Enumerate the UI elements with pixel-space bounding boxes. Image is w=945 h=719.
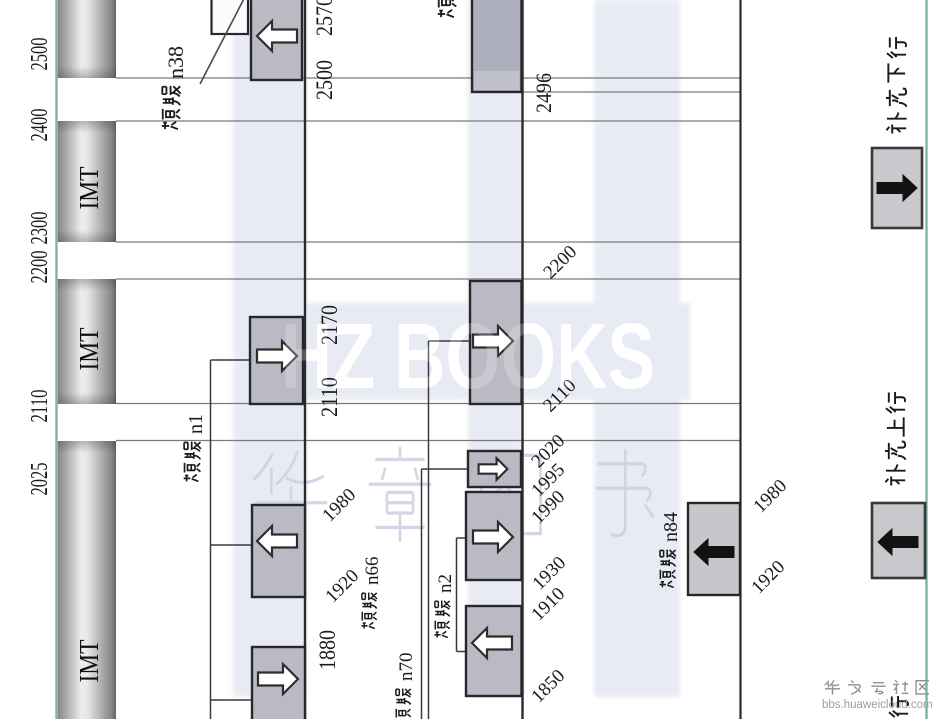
svg-text:1920: 1920 [321,565,363,607]
svg-text:1850: 1850 [527,665,569,707]
svg-text:n66: n66 [362,557,383,586]
svg-text:n70: n70 [396,653,417,682]
svg-text:bbs.huaweicloud.com: bbs.huaweicloud.com [822,699,933,711]
svg-text:2400: 2400 [27,109,53,142]
svg-text:2500: 2500 [312,60,337,100]
svg-text:2200: 2200 [539,241,581,283]
svg-text:2200: 2200 [27,251,53,284]
svg-text:2110: 2110 [27,390,53,423]
svg-text:2570: 2570 [312,0,337,36]
svg-text:BOOKS: BOOKS [394,304,655,408]
svg-text:2500: 2500 [27,38,53,71]
svg-text:1910: 1910 [527,583,569,625]
svg-text:2025: 2025 [27,463,53,496]
svg-text:n2: n2 [435,574,456,593]
svg-text:1880: 1880 [315,630,340,670]
svg-text:n84: n84 [660,512,682,542]
svg-text:n1: n1 [185,414,207,434]
svg-text:n38: n38 [163,46,188,79]
svg-text:IMT: IMT [74,327,104,370]
svg-text:2300: 2300 [27,212,53,245]
svg-text:2496: 2496 [531,73,556,113]
svg-text:IMT: IMT [74,639,104,682]
svg-text:1920: 1920 [747,556,789,598]
svg-text:1980: 1980 [318,484,360,526]
svg-text:HZ: HZ [281,304,375,408]
svg-text:IMT: IMT [74,166,104,209]
svg-text:1980: 1980 [749,475,791,517]
